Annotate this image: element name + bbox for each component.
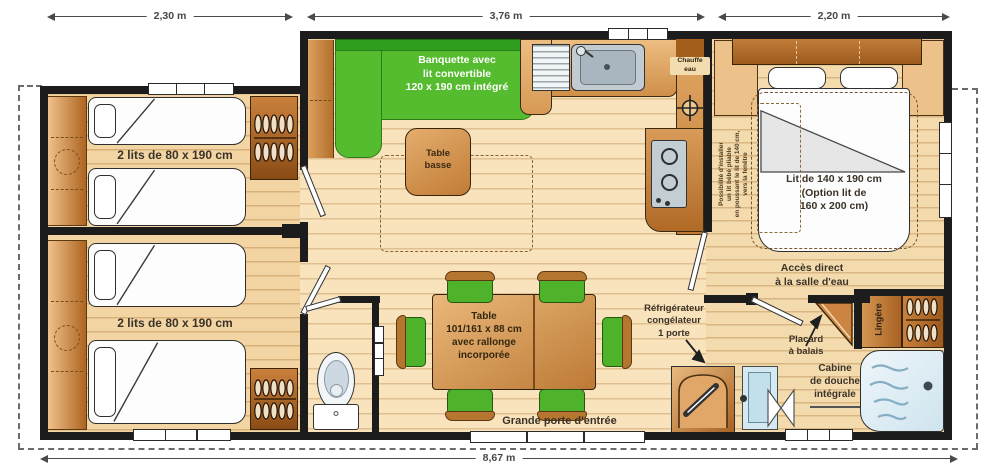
chair-bottom-2 [539,389,585,415]
master-bed-label: Lit de 140 x 190 cm (Option lit de 160 x… [760,173,908,214]
bed-fold-line [117,99,154,143]
toilet-side-panel [374,326,384,376]
shower-label: Cabine de douche intégrale [798,362,872,401]
coffee-table-label: Table basse [405,148,471,173]
shower-tray [860,350,944,432]
entrance-door-threshold [470,431,645,443]
wall-closet-top [854,289,952,296]
single-bed-4 [88,340,246,424]
toilet-seat-dot [330,384,343,397]
baby-bed-note: Possibilité d'installer un lit bébé plia… [718,114,750,234]
hall-cabinet [308,40,334,158]
single-bed-2 [88,168,246,226]
cabinet-divider [859,36,860,64]
bathroom-access-label: Accès direct à la salle d'eau [752,262,872,289]
pillow [94,250,116,300]
floorplan-mobile-home: 2 lits de 80 x 190 cm 2 lits de 80 x 190… [0,0,1000,470]
window-bathroom [785,429,853,441]
chair-right [602,317,626,367]
broom-closet-label: Placard à balais [778,334,834,359]
burner-dot-2 [665,201,670,206]
chair-bottom-1 [447,389,493,415]
wardrobe-1 [250,96,298,180]
wall-step [300,31,308,94]
wardrobe-2 [250,368,298,430]
bed-fold-line [117,245,154,305]
toilet-tank [313,404,359,430]
wall-left [40,86,48,440]
sink-drain [604,64,610,70]
water-heater-top [676,39,704,57]
fridge [671,366,735,433]
burner-1 [661,148,678,165]
wall-right [944,31,952,440]
overhead-cabinet [732,35,922,65]
door-handle [740,395,747,402]
bedroom2-label: 2 lits de 80 x 190 cm [60,316,290,332]
dimension-middle: 3,76 m [307,10,705,23]
window-kitchen [608,28,668,40]
master-pillow-1 [768,67,826,89]
chassis-dashed-right [976,88,978,449]
cabinet-divider [796,36,797,64]
wall-hall-upper [300,86,308,170]
window-bedroom1 [148,83,234,95]
pillow [94,347,116,417]
single-bed-1 [88,97,246,145]
shower-label-underline [810,406,860,408]
bedside-unit-2 [47,240,87,430]
dimension-left: 2,30 m [47,10,293,23]
fridge-label: Réfrigérateur congélateur 1 porte [632,303,716,340]
window-master-bedroom [939,122,952,218]
entrance-label: Grande porte d'entrée [492,414,627,428]
hanger-closet [902,292,944,348]
water-heater-label: Chauffe eau [670,57,710,75]
flush-button [334,411,339,416]
bed-fold-line [114,343,158,422]
bed-fold-line [117,170,154,224]
chair-left [402,317,426,367]
chassis-dashed-left [18,85,20,449]
dining-table-label: Table 101/161 x 88 cm avec rallonge inco… [434,310,534,362]
pillow [94,104,116,138]
chassis-dashed-top-right [952,88,978,90]
dimension-total: 8,67 m [40,452,958,465]
bedroom1-label: 2 lits de 80 x 190 cm [60,148,290,164]
single-bed-3 [88,243,246,307]
chassis-dashed-bottom [18,448,978,450]
chassis-dashed-top-left [18,85,42,87]
burner-2 [661,174,678,191]
master-pillow-2 [840,67,898,89]
bathroom-door-panel [742,366,778,430]
chair-top-2 [539,277,585,303]
wall-hall-lower [300,314,308,440]
pillow [94,175,116,219]
door-glass [748,372,771,423]
linen-closet-label: Lingère [874,295,887,345]
wall-shower-divider [854,293,862,349]
wall-between-bedrooms-cap [282,224,302,238]
dimension-total-value: 8,67 m [476,452,523,464]
wall-between-bedrooms [47,227,289,235]
dimension-right: 2,20 m [718,10,950,23]
banquette-label: Banquette avec lit convertible 120 x 190… [362,54,552,95]
dimension-middle-value: 3,76 m [483,10,530,22]
burner-dot-1 [656,198,661,203]
dimension-right-value: 2,20 m [811,10,858,22]
window-bedroom2 [133,429,231,441]
chair-top-1 [447,277,493,303]
dimension-left-value: 2,30 m [147,10,194,22]
